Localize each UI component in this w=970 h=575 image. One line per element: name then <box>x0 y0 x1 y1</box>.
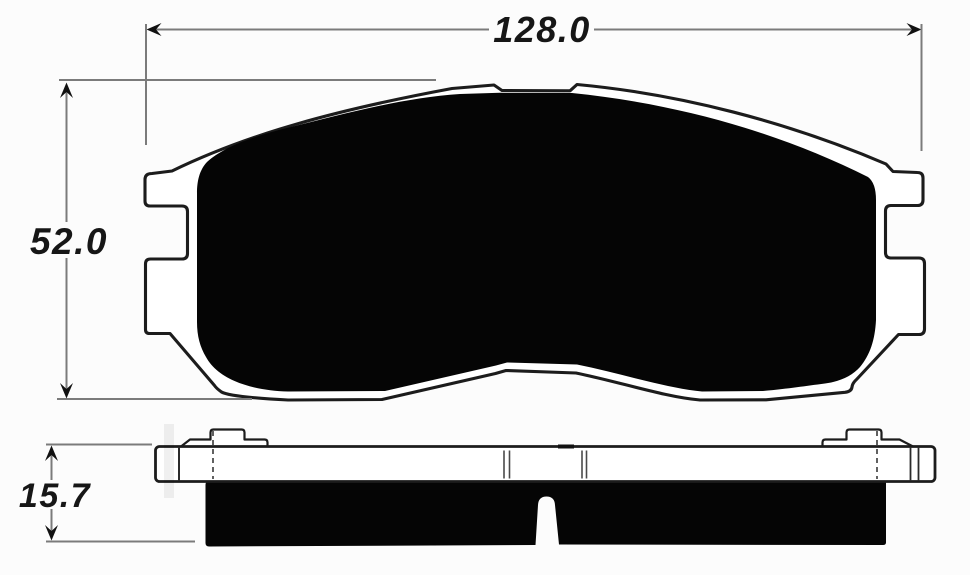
svg-text:52.0: 52.0 <box>30 221 108 262</box>
svg-text:15.7: 15.7 <box>19 477 92 515</box>
svg-text:128.0: 128.0 <box>493 9 591 50</box>
